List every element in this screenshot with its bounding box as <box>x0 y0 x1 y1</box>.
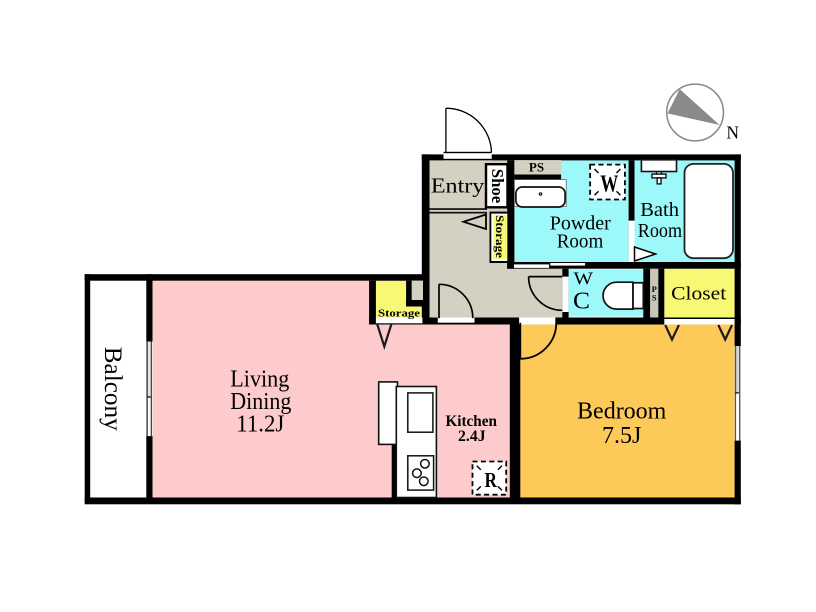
svg-text:Bedroom: Bedroom <box>577 399 667 425</box>
svg-text:Room: Room <box>557 231 604 253</box>
svg-text:W: W <box>574 269 594 289</box>
svg-text:C: C <box>573 288 590 314</box>
svg-text:N: N <box>726 123 739 143</box>
svg-text:Closet: Closet <box>671 285 727 305</box>
svg-text:Entry: Entry <box>431 173 485 197</box>
svg-text:11.2J: 11.2J <box>236 412 284 438</box>
svg-text:W: W <box>600 172 618 198</box>
svg-text:Room: Room <box>638 220 682 242</box>
svg-text:2.4J: 2.4J <box>458 428 486 445</box>
svg-text:7.5J: 7.5J <box>602 423 641 449</box>
svg-text:PS: PS <box>529 159 544 174</box>
svg-text:Shoe: Shoe <box>488 169 507 204</box>
svg-text:Balcony: Balcony <box>99 347 128 431</box>
svg-text:Storage: Storage <box>378 308 420 320</box>
svg-text:Storage: Storage <box>493 215 507 259</box>
svg-text:R: R <box>485 468 498 492</box>
svg-text:Bath: Bath <box>640 199 679 221</box>
svg-text:S: S <box>652 293 657 303</box>
